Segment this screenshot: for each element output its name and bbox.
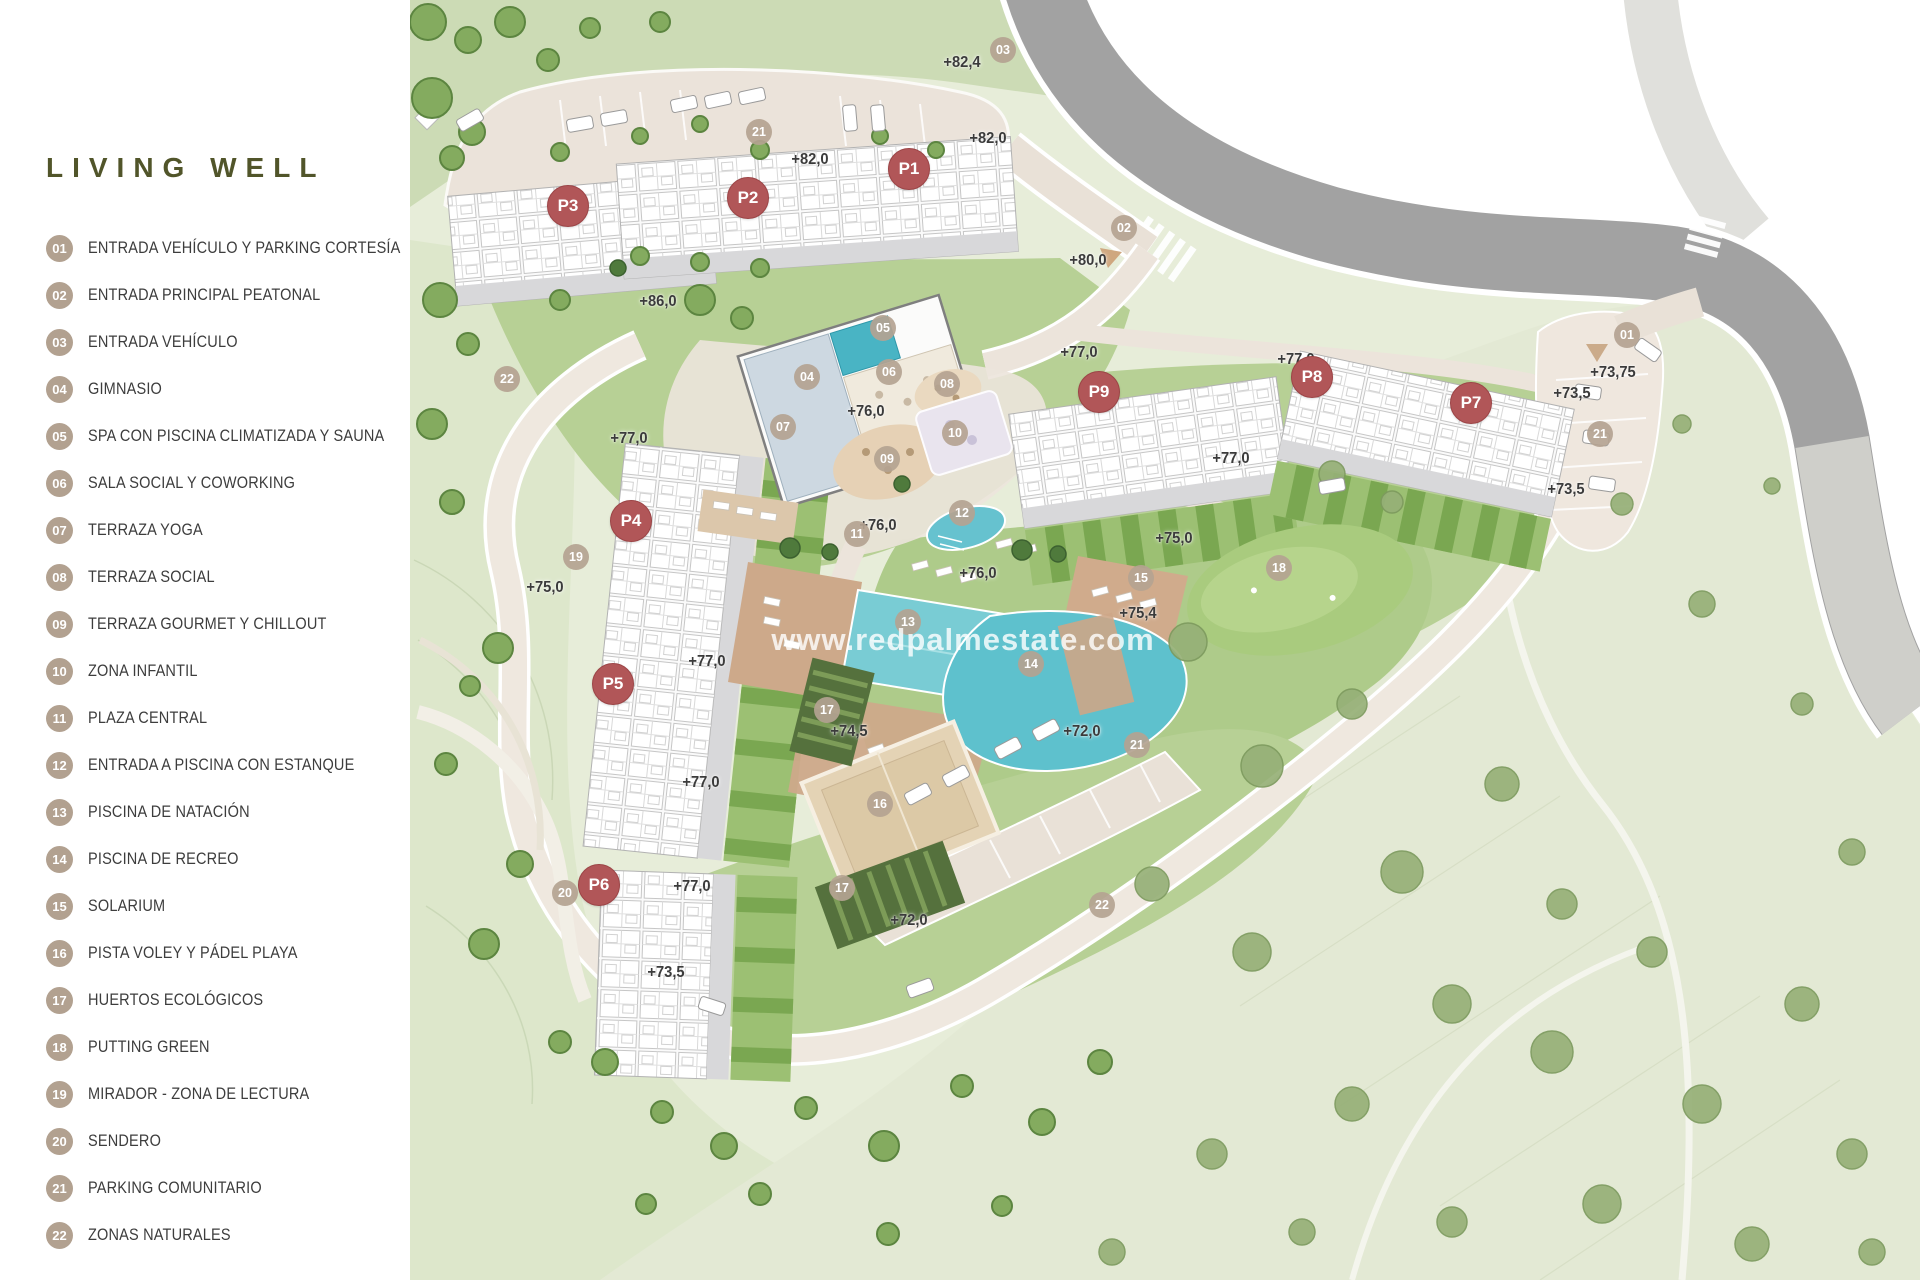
legend-number-badge: 07 [46,517,73,544]
legend-label: ZONA INFANTIL [88,662,198,681]
legend-item-15: 15SOLARIUM [46,883,443,930]
legend-item-07: 07TERRAZA YOGA [46,507,443,554]
legend-number-badge: 16 [46,940,73,967]
legend-item-12: 12ENTRADA A PISCINA CON ESTANQUE [46,742,443,789]
legend-number-badge: 10 [46,658,73,685]
legend-number-badge: 12 [46,752,73,779]
legend-item-19: 19MIRADOR - ZONA DE LECTURA [46,1071,443,1118]
legend-item-02: 02ENTRADA PRINCIPAL PEATONAL [46,272,443,319]
legend-item-05: 05SPA CON PISCINA CLIMATIZADA Y SAUNA [46,413,443,460]
legend-number-badge: 11 [46,705,73,732]
legend-label: PLAZA CENTRAL [88,709,207,728]
legend-item-16: 16PISTA VOLEY Y PÁDEL PLAYA [46,930,443,977]
legend-label: ENTRADA PRINCIPAL PEATONAL [88,286,320,305]
legend-number-badge: 01 [46,235,73,262]
legend-label: ZONAS NATURALES [88,1226,231,1245]
legend-label: TERRAZA GOURMET Y CHILLOUT [88,615,327,634]
legend-label: PUTTING GREEN [88,1038,210,1057]
legend-item-03: 03ENTRADA VEHÍCULO [46,319,443,366]
legend-number-badge: 09 [46,611,73,638]
legend-number-badge: 17 [46,987,73,1014]
legend-label: SOLARIUM [88,897,165,916]
legend-label: PISCINA DE NATACIÓN [88,803,250,822]
legend-item-08: 08TERRAZA SOCIAL [46,554,443,601]
building-block-p6 [594,870,797,1082]
legend-label: ENTRADA VEHÍCULO Y PARKING CORTESÍA [88,239,401,258]
legend-item-10: 10ZONA INFANTIL [46,648,443,695]
legend-item-01: 01ENTRADA VEHÍCULO Y PARKING CORTESÍA [46,225,443,272]
legend-label: TERRAZA YOGA [88,521,203,540]
legend-item-14: 14PISCINA DE RECREO [46,836,443,883]
legend-number-badge: 02 [46,282,73,309]
legend-number-badge: 05 [46,423,73,450]
legend-number-badge: 18 [46,1034,73,1061]
legend-item-13: 13PISCINA DE NATACIÓN [46,789,443,836]
legend-label: PISCINA DE RECREO [88,850,239,869]
legend-label: SPA CON PISCINA CLIMATIZADA Y SAUNA [88,427,384,446]
legend-panel: LIVING WELL 01ENTRADA VEHÍCULO Y PARKING… [0,0,410,1280]
legend-label: PARKING COMUNITARIO [88,1179,262,1198]
legend-label: PISTA VOLEY Y PÁDEL PLAYA [88,944,298,963]
legend-number-badge: 08 [46,564,73,591]
legend-item-06: 06SALA SOCIAL Y COWORKING [46,460,443,507]
legend-number-badge: 04 [46,376,73,403]
legend-item-17: 17HUERTOS ECOLÓGICOS [46,977,443,1024]
legend-item-09: 09TERRAZA GOURMET Y CHILLOUT [46,601,443,648]
legend-label: ENTRADA VEHÍCULO [88,333,238,352]
legend-item-11: 11PLAZA CENTRAL [46,695,443,742]
legend-number-badge: 15 [46,893,73,920]
legend-label: HUERTOS ECOLÓGICOS [88,991,263,1010]
legend-item-21: 21PARKING COMUNITARIO [46,1165,443,1212]
legend-list: 01ENTRADA VEHÍCULO Y PARKING CORTESÍA02E… [46,225,443,1259]
legend-item-18: 18PUTTING GREEN [46,1024,443,1071]
legend-number-badge: 03 [46,329,73,356]
legend-item-22: 22ZONAS NATURALES [46,1212,443,1259]
brand-logo: LIVING WELL [46,152,325,184]
legend-label: ENTRADA A PISCINA CON ESTANQUE [88,756,354,775]
legend-item-20: 20SENDERO [46,1118,443,1165]
legend-label: GIMNASIO [88,380,162,399]
legend-label: SALA SOCIAL Y COWORKING [88,474,295,493]
watermark: www.redpalmestate.com [771,622,1154,658]
legend-number-badge: 06 [46,470,73,497]
legend-label: TERRAZA SOCIAL [88,568,215,587]
legend-number-badge: 19 [46,1081,73,1108]
site-plan-page: +82,4+82,0+82,0+86,0+80,0+77,0+77,0+73,7… [0,0,1920,1280]
legend-item-04: 04GIMNASIO [46,366,443,413]
legend-number-badge: 14 [46,846,73,873]
legend-number-badge: 21 [46,1175,73,1202]
legend-number-badge: 20 [46,1128,73,1155]
legend-label: SENDERO [88,1132,161,1151]
legend-number-badge: 13 [46,799,73,826]
legend-label: MIRADOR - ZONA DE LECTURA [88,1085,309,1104]
legend-number-badge: 22 [46,1222,73,1249]
